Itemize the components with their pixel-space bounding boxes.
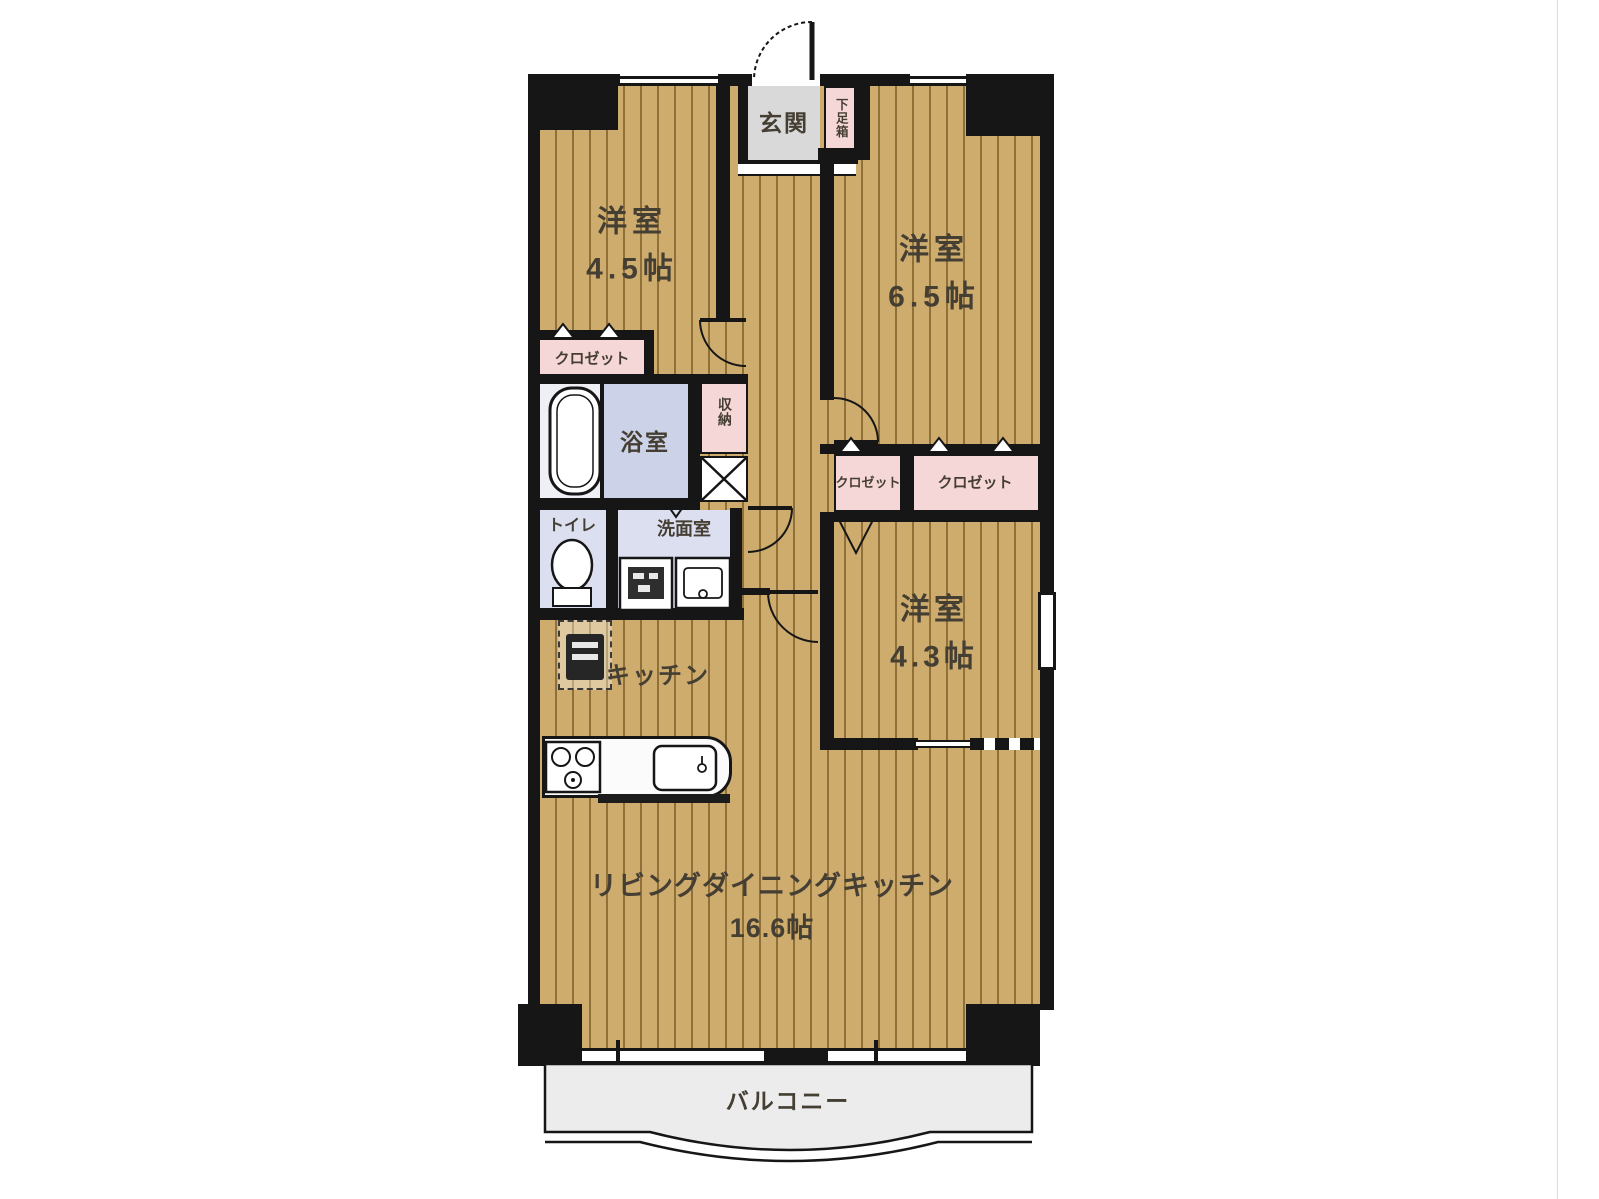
wall-segment bbox=[856, 86, 870, 152]
shoe-cabinet-label: 下足箱 bbox=[830, 98, 849, 139]
wall-segment bbox=[820, 160, 834, 400]
floor-plan: 洋室 4.5帖 洋室 6.5帖 洋室 4.3帖 リビングダイニングキッチン 16… bbox=[0, 0, 1599, 1199]
wall-segment bbox=[1040, 74, 1054, 1010]
low-window bbox=[916, 740, 972, 748]
pipe-space-box bbox=[700, 456, 748, 502]
room-label-45: 洋室 4.5帖 bbox=[586, 200, 678, 293]
room-43-name: 洋室 bbox=[890, 588, 978, 635]
wall-segment bbox=[528, 74, 540, 1010]
corner-column bbox=[518, 1004, 582, 1066]
window-center-stile bbox=[764, 1048, 828, 1064]
ldk-size: 16.6帖 bbox=[590, 908, 954, 950]
balcony-label: バルコニー bbox=[726, 1084, 851, 1120]
storage-label: 収納 bbox=[713, 397, 735, 427]
room-65-size: 6.5帖 bbox=[888, 274, 980, 321]
room-43-size: 4.3帖 bbox=[890, 634, 978, 681]
room-label-65: 洋室 6.5帖 bbox=[888, 228, 980, 321]
wall-segment bbox=[820, 444, 1040, 454]
wall-segment bbox=[738, 86, 748, 164]
washroom-label: 洗面室 bbox=[657, 516, 711, 544]
wall-segment bbox=[600, 382, 604, 498]
room-label-43: 洋室 4.3帖 bbox=[890, 588, 978, 681]
kitchen-counter bbox=[542, 736, 732, 798]
room-45-name: 洋室 bbox=[586, 200, 678, 247]
wall-segment bbox=[742, 588, 770, 595]
ldk-name: リビングダイニングキッチン bbox=[590, 866, 954, 908]
wall-segment bbox=[818, 148, 870, 160]
kitchen-label: キッチン bbox=[606, 657, 710, 694]
room-45-size: 4.5帖 bbox=[586, 246, 678, 293]
room-label-ldk: リビングダイニングキッチン 16.6帖 bbox=[590, 866, 954, 950]
wall-segment bbox=[606, 510, 618, 608]
corner-column bbox=[528, 74, 618, 130]
window bbox=[910, 76, 968, 86]
genkan-label: 玄関 bbox=[759, 106, 809, 142]
wall-segment bbox=[528, 374, 748, 384]
wall-segment bbox=[820, 74, 910, 86]
balcony-railing-curve bbox=[545, 1142, 1032, 1161]
scan-edge-line bbox=[1557, 0, 1558, 1199]
entrance-door-arc bbox=[754, 22, 812, 80]
window-tick bbox=[874, 1040, 878, 1070]
closet-1-label: クロゼット bbox=[835, 473, 900, 493]
window bbox=[620, 76, 718, 86]
bath-label: 浴室 bbox=[620, 425, 670, 461]
wall-segment bbox=[820, 522, 834, 738]
refrigerator-space bbox=[558, 620, 612, 690]
wall-segment bbox=[718, 74, 752, 86]
side-window bbox=[1038, 592, 1056, 670]
wall-segment bbox=[716, 86, 730, 318]
corner-column bbox=[966, 1004, 1040, 1066]
wall-hatch bbox=[970, 738, 1040, 750]
room-65-name: 洋室 bbox=[888, 228, 980, 275]
wall-segment bbox=[730, 508, 742, 608]
wall-segment bbox=[820, 738, 918, 750]
closet-45-label: クロゼット bbox=[554, 347, 629, 370]
wall-segment bbox=[528, 498, 700, 510]
closet-2-label: クロゼット bbox=[937, 471, 1012, 494]
bathtub-area bbox=[540, 382, 602, 498]
wall-segment bbox=[528, 330, 650, 338]
wall-segment bbox=[528, 608, 744, 620]
genkan-step bbox=[738, 164, 856, 176]
wall-segment bbox=[688, 384, 700, 508]
wall-segment bbox=[902, 454, 912, 512]
window-tick bbox=[616, 1040, 620, 1070]
wall-segment bbox=[820, 512, 1040, 522]
toilet-label: トイレ bbox=[548, 515, 596, 540]
